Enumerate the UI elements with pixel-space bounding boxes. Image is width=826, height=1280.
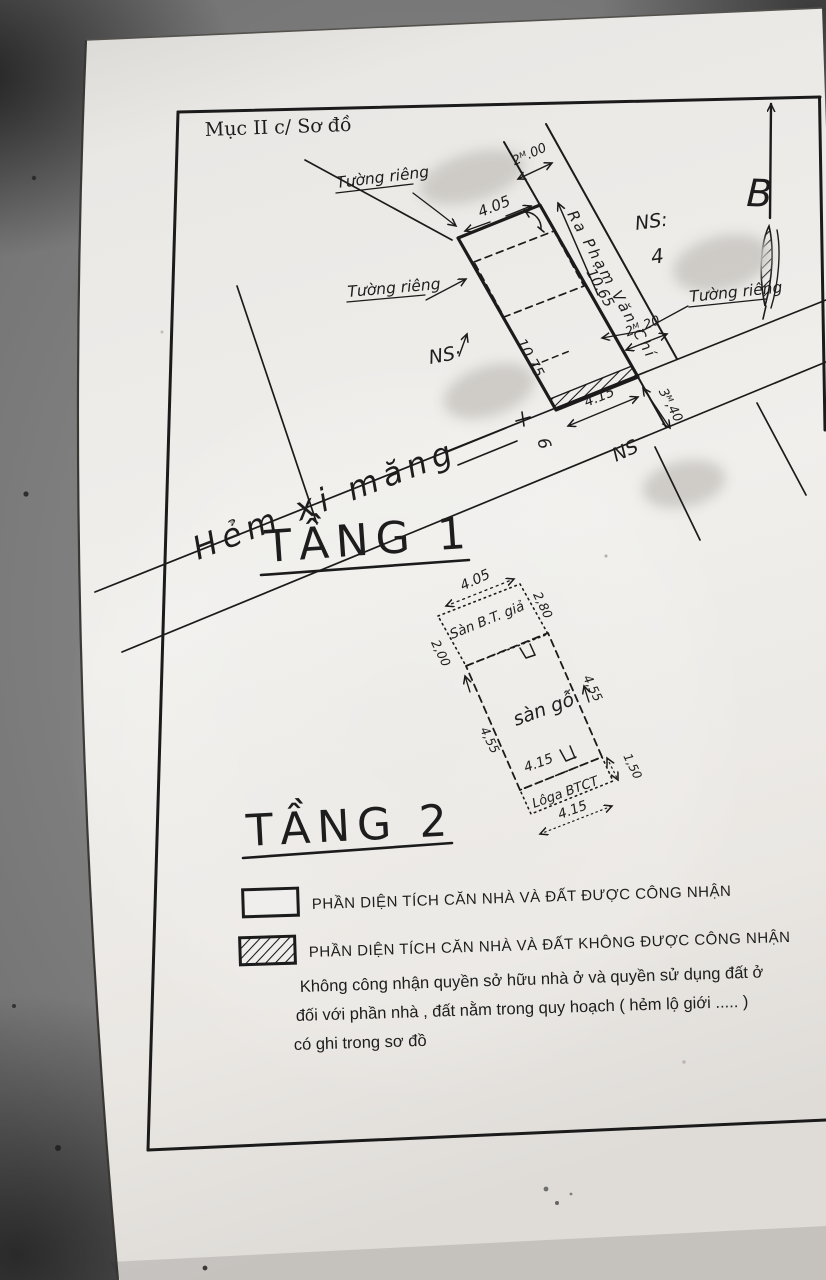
photo-sheen <box>0 260 826 1200</box>
photo-scene: Mục II c/ Sơ đồ B <box>0 0 826 1280</box>
north-label: B <box>746 171 774 216</box>
document-photo: Mục II c/ Sơ đồ B <box>0 0 826 1280</box>
legend-not-recognized-swatch <box>240 936 296 965</box>
legend-recognized-swatch <box>243 888 299 917</box>
ns-top: NS: <box>634 209 669 235</box>
